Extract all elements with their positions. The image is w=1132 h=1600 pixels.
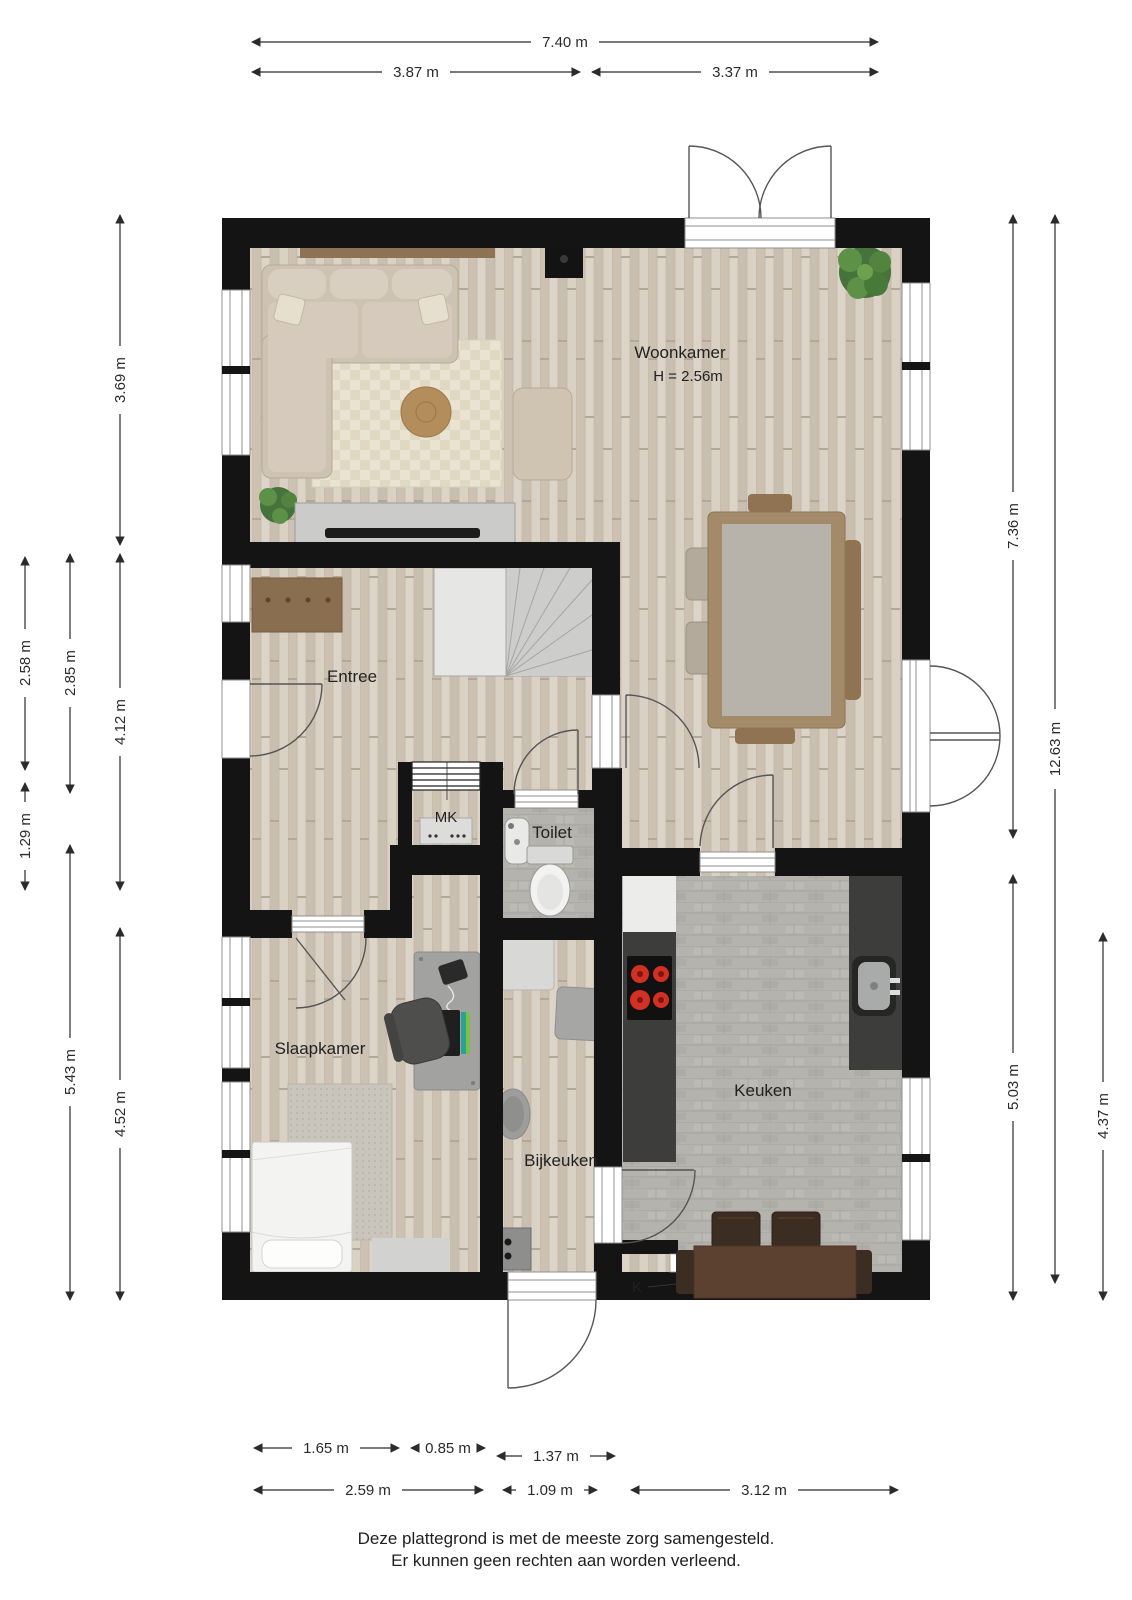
dim-right-437: 4.37 m — [1095, 1093, 1112, 1139]
toilet-bowl — [527, 846, 573, 916]
floorplan-drawing: Woonkamer H = 2.56m Entree MK Toilet Sla… — [0, 0, 1132, 1600]
cooktop — [627, 956, 672, 1020]
dim-left-285: 2.85 m — [62, 650, 79, 696]
pillow — [262, 1240, 342, 1268]
window — [222, 937, 250, 1068]
footer-line-1: Deze plattegrond is met de meeste zorg s… — [358, 1529, 775, 1548]
dim-bottom-165: 1.65 m — [303, 1440, 349, 1457]
pillow — [273, 293, 306, 326]
dim-right-736: 7.36 m — [1005, 503, 1022, 549]
dining-bench — [843, 540, 861, 700]
dim-left-129: 1.29 m — [17, 813, 34, 859]
toilet-sink — [505, 818, 529, 864]
tv — [325, 528, 480, 538]
kitchen-chair — [772, 1212, 820, 1248]
dim-right-1263: 12.63 m — [1047, 722, 1064, 776]
label-woonkamer-height: H = 2.56m — [653, 368, 723, 385]
dim-top-387: 3.87 m — [393, 64, 439, 81]
dining-stool — [735, 728, 795, 744]
label-keuken: Keuken — [734, 1081, 792, 1100]
rear-door — [508, 1272, 596, 1388]
bed — [252, 1142, 352, 1272]
dim-top-337: 3.37 m — [712, 64, 758, 81]
patio-double-doors — [902, 660, 1000, 812]
faucet — [890, 978, 900, 983]
kitchen-chair — [712, 1212, 760, 1248]
label-mk: MK — [435, 809, 458, 826]
label-woonkamer: Woonkamer — [634, 343, 726, 362]
dim-bottom-312: 3.12 m — [741, 1482, 787, 1499]
dim-bottom-085: 0.85 m — [425, 1440, 471, 1457]
daybed — [513, 388, 572, 480]
dim-bottom-137: 1.37 m — [533, 1448, 579, 1465]
dim-left-369: 3.69 m — [112, 357, 129, 403]
dim-left-452: 4.52 m — [112, 1091, 129, 1137]
window — [902, 1078, 930, 1240]
washer — [500, 938, 554, 990]
footer-disclaimer: Deze plattegrond is met de meeste zorg s… — [358, 1529, 775, 1570]
label-slaapkamer: Slaapkamer — [275, 1039, 366, 1058]
window — [222, 290, 250, 455]
dim-top-740: 7.40 m — [542, 34, 588, 51]
dim-left-412: 4.12 m — [112, 699, 129, 745]
kitchen-sink — [852, 956, 900, 1016]
kitchen-table — [694, 1246, 856, 1298]
kitchen-chair — [676, 1250, 696, 1294]
floor-mat — [372, 1238, 450, 1272]
dim-left-543: 5.43 m — [62, 1049, 79, 1095]
window — [222, 565, 250, 622]
wall-shelf — [300, 248, 495, 258]
coat-rack — [252, 578, 342, 632]
dim-bottom-109: 1.09 m — [527, 1482, 573, 1499]
stairs — [434, 568, 592, 676]
tv-sideboard — [295, 503, 515, 545]
dim-left-258: 2.58 m — [17, 640, 34, 686]
label-bijkeuken: Bijkeuken — [524, 1151, 598, 1170]
k-closet-floor — [622, 1254, 670, 1272]
footer-line-2: Er kunnen geen rechten aan worden verlee… — [391, 1551, 741, 1570]
label-entree: Entree — [327, 667, 377, 686]
coffee-table — [401, 387, 451, 437]
window — [222, 1082, 250, 1232]
floorplan-page: Woonkamer H = 2.56m Entree MK Toilet Sla… — [0, 0, 1132, 1600]
dim-right-503: 5.03 m — [1005, 1064, 1022, 1110]
label-k: K — [632, 1279, 642, 1296]
pillow — [418, 293, 450, 325]
dim-bottom-259: 2.59 m — [345, 1482, 391, 1499]
window — [902, 283, 930, 450]
label-toilet: Toilet — [532, 823, 572, 842]
dining-stool — [748, 494, 792, 512]
dining-set — [686, 494, 861, 744]
garden-double-doors — [685, 146, 835, 248]
